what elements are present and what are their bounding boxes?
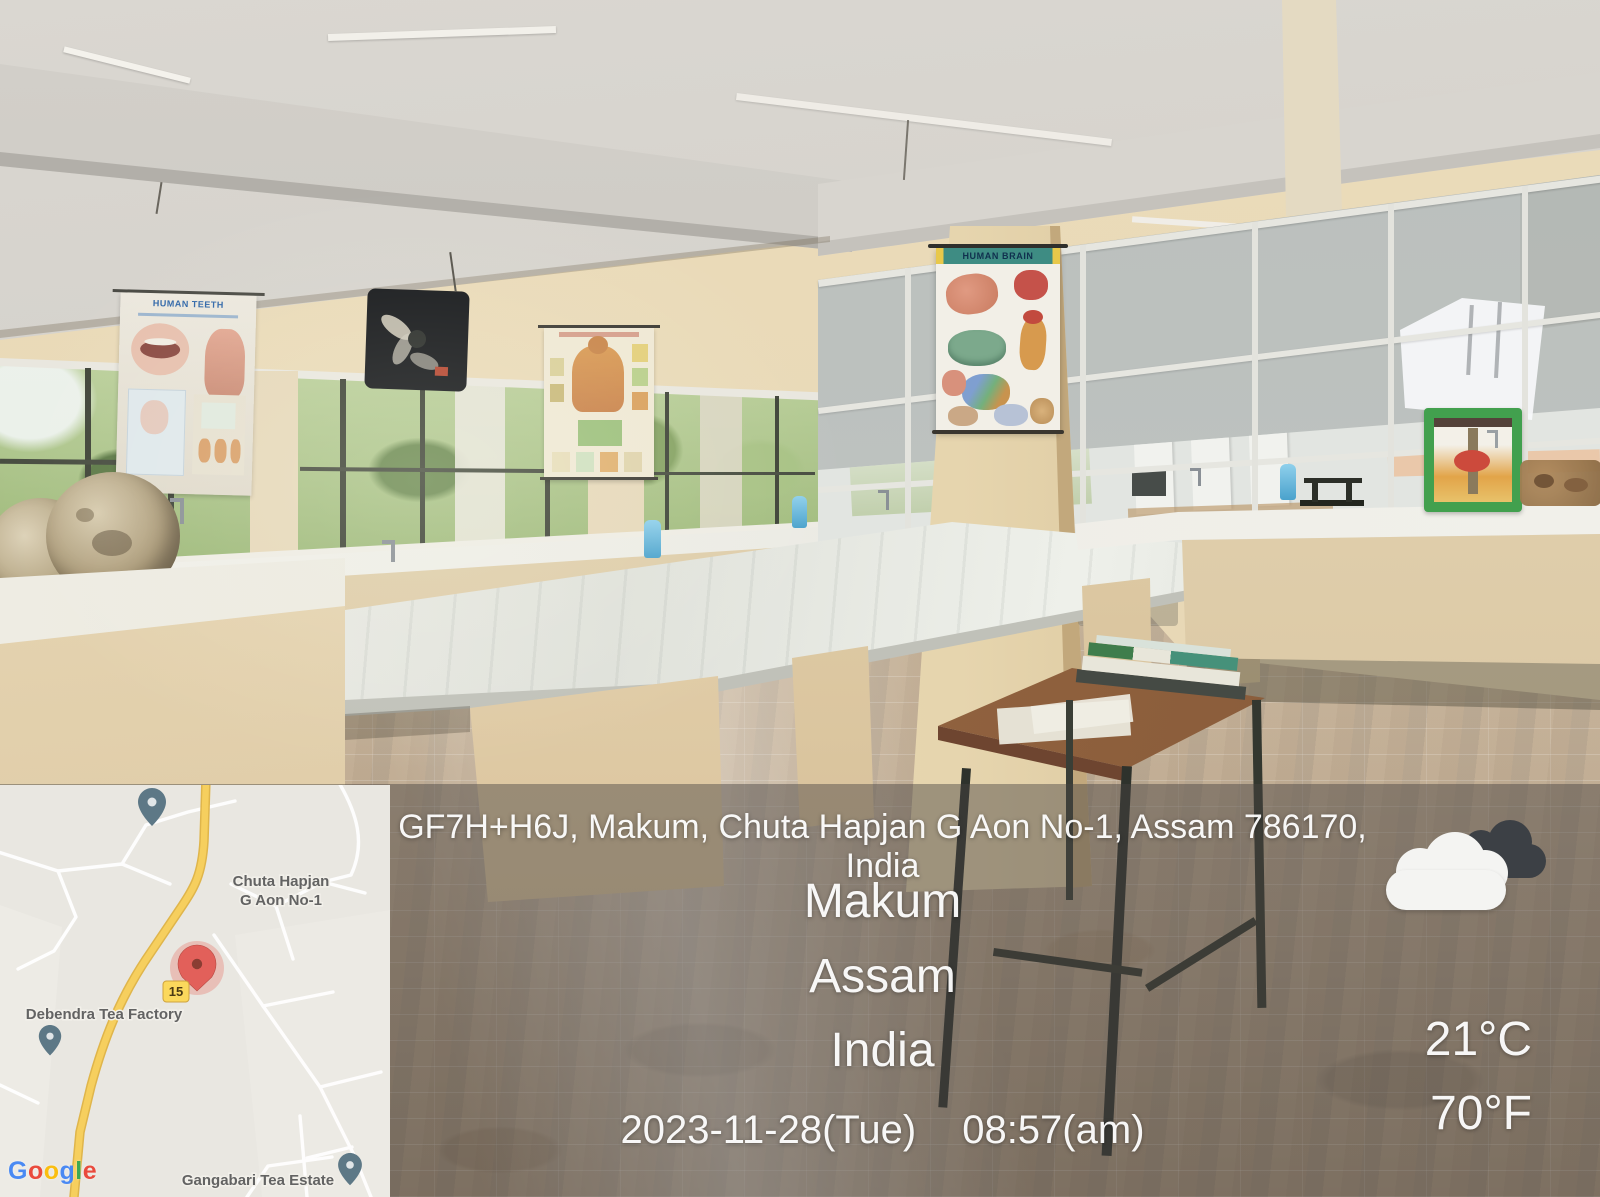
map-label-place-line2: G Aon No-1 bbox=[240, 892, 322, 909]
map-thumbnail: 15 Chuta Hapjan G Aon No-1 Debendra Tea … bbox=[0, 785, 390, 1197]
date-value: 2023-11-28(Tue) bbox=[620, 1108, 916, 1153]
map-svg: 15 Chuta Hapjan G Aon No-1 Debendra Tea … bbox=[0, 785, 390, 1197]
route-badge: 15 bbox=[163, 981, 189, 1002]
gps-camera-photo: HUMAN TEETH bbox=[0, 0, 1600, 1197]
temperature-celsius: 21°C bbox=[1232, 1012, 1532, 1067]
city-line: Makum bbox=[390, 874, 1375, 929]
google-logo: Google bbox=[8, 1157, 97, 1186]
time-value: 08:57(am) bbox=[962, 1108, 1144, 1153]
country-line: India bbox=[390, 1023, 1375, 1078]
route-badge-label: 15 bbox=[169, 984, 183, 999]
datetime-line: 2023-11-28(Tue) 08:57(am) bbox=[390, 1108, 1375, 1153]
map-label-tea-estate: Gangabari Tea Estate bbox=[182, 1172, 334, 1189]
map-label-tea-factory: Debendra Tea Factory bbox=[26, 1006, 183, 1023]
cloudy-weather-icon bbox=[1384, 816, 1554, 916]
temperature-fahrenheit: 70°F bbox=[1232, 1086, 1532, 1141]
state-line: Assam bbox=[390, 949, 1375, 1004]
map-label-place-line1: Chuta Hapjan bbox=[233, 873, 330, 890]
